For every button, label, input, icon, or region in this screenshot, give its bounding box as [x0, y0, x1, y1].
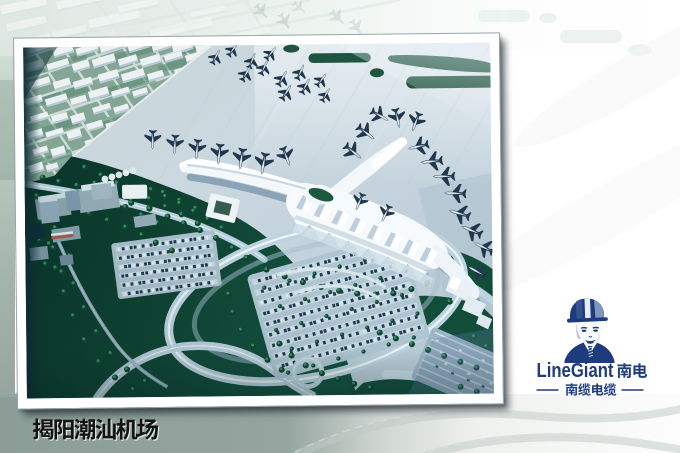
svg-text:LineGiant: LineGiant — [537, 359, 614, 382]
